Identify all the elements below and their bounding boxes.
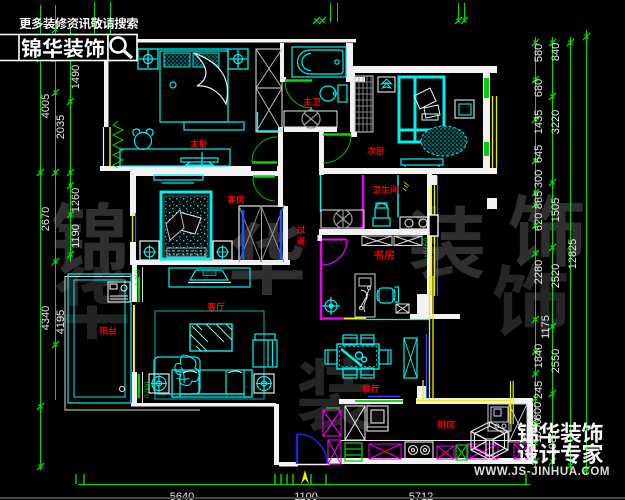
svg-text:300: 300: [533, 170, 545, 188]
svg-text:WWW.JS-JINHUA.COM: WWW.JS-JINHUA.COM: [474, 466, 610, 478]
svg-text:1840: 1840: [533, 344, 545, 368]
svg-text:1175: 1175: [540, 315, 552, 339]
svg-text:580: 580: [533, 44, 545, 62]
svg-text:1260: 1260: [70, 188, 82, 212]
svg-text:840: 840: [550, 43, 562, 61]
svg-text:1435: 1435: [533, 110, 545, 134]
svg-text:2520: 2520: [550, 264, 562, 288]
svg-text:4005: 4005: [40, 94, 52, 118]
svg-text:620: 620: [533, 213, 545, 231]
svg-text:645: 645: [533, 145, 545, 163]
svg-text:2670: 2670: [40, 207, 52, 231]
svg-text:885: 885: [533, 191, 545, 209]
svg-text:+0.050: +0.050: [135, 270, 142, 290]
svg-text:1505: 1505: [550, 198, 562, 222]
svg-text:2550: 2550: [550, 349, 562, 373]
svg-text:4340: 4340: [40, 306, 52, 330]
svg-text:2280: 2280: [533, 260, 545, 284]
svg-text:1490: 1490: [70, 65, 82, 89]
svg-text:1190: 1190: [70, 224, 82, 248]
svg-text:680: 680: [533, 79, 545, 97]
svg-text:+0.050: +0.050: [423, 238, 430, 258]
svg-text:2035: 2035: [55, 115, 67, 139]
svg-text:12825: 12825: [567, 239, 579, 270]
svg-text:4195: 4195: [55, 310, 67, 334]
svg-text:3220: 3220: [550, 110, 562, 134]
svg-text:245: 245: [533, 381, 545, 399]
svg-text:W: W: [442, 451, 449, 458]
svg-text:600: 600: [532, 402, 544, 420]
svg-text:0.000: 0.000: [144, 381, 151, 398]
